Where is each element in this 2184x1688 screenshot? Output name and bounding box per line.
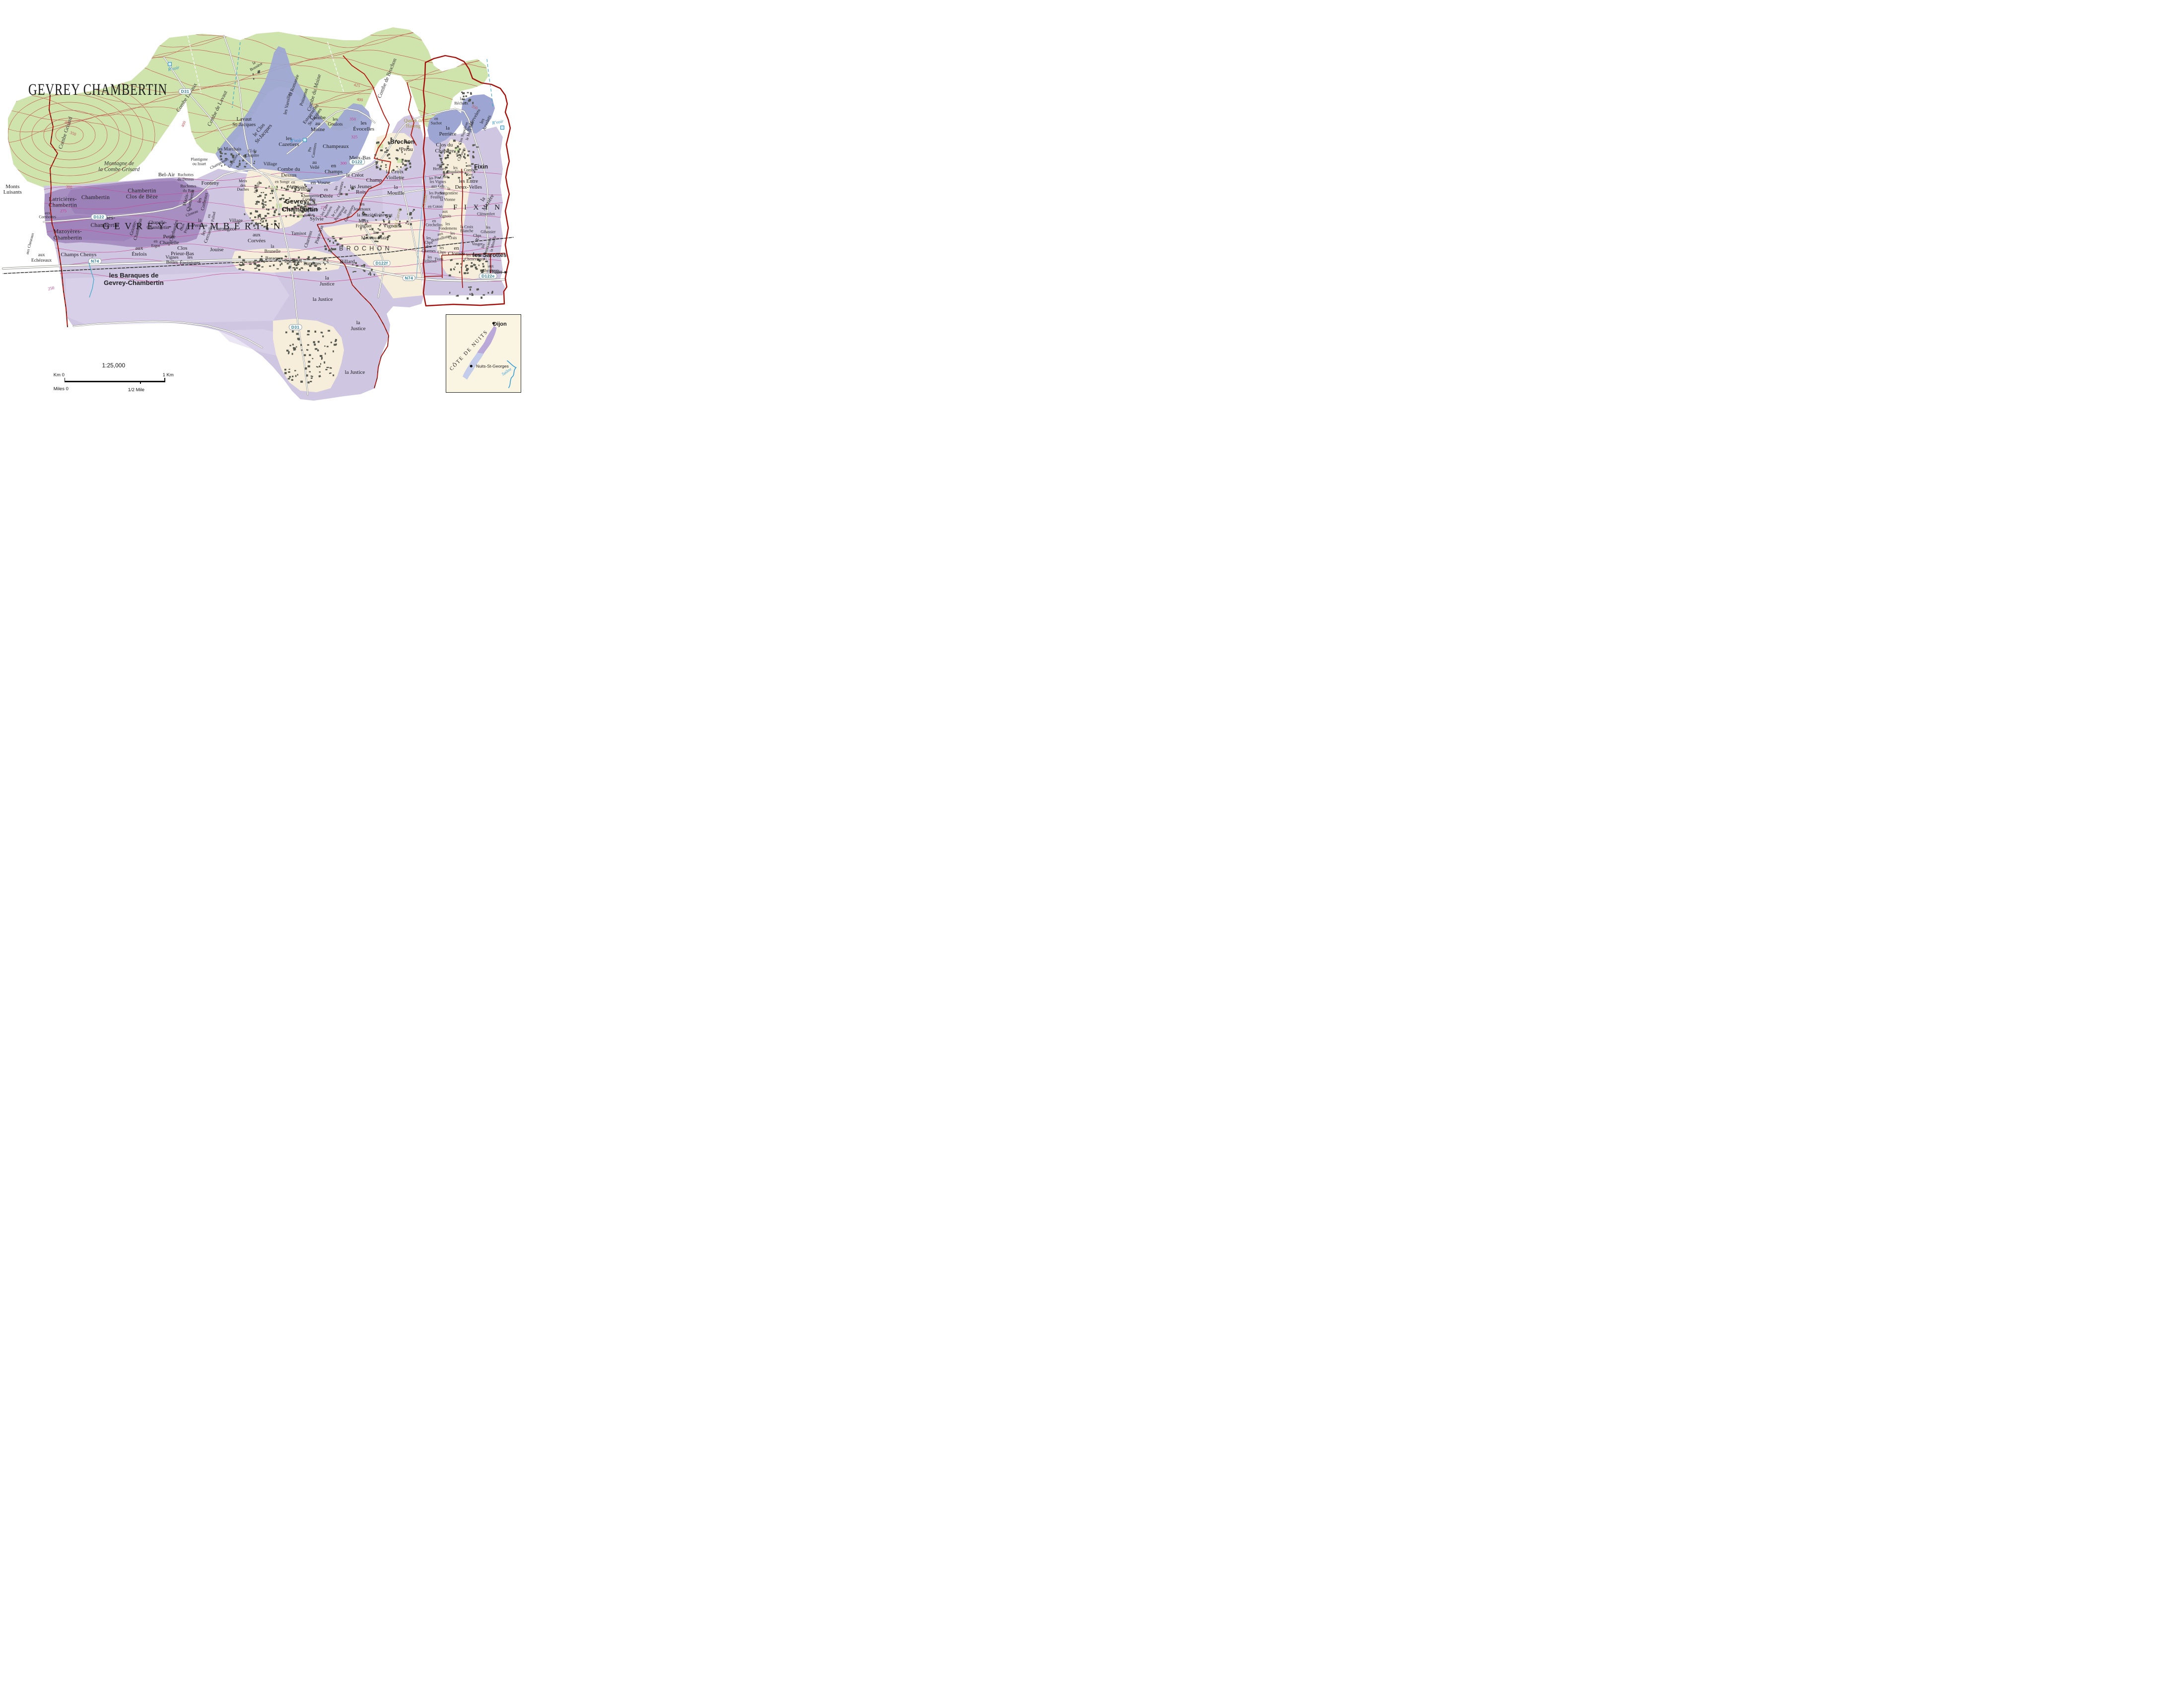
map-label: Fonteny — [201, 181, 219, 187]
map-label: 250 — [48, 285, 55, 291]
map-label: les Hervelets — [465, 108, 482, 132]
map-label: au Closeau — [184, 205, 199, 218]
map-label: aux Boutoillottes — [430, 230, 452, 243]
map-label: la Mouille — [387, 185, 405, 197]
map-label: Champonnet — [209, 157, 229, 170]
map-label: les Carrés — [393, 207, 403, 228]
map-label: 350 — [349, 117, 356, 121]
map-label: la Justice — [351, 320, 366, 332]
inset-canvas — [446, 315, 521, 392]
map-label: les Gibassier — [480, 226, 495, 234]
map-label: aux Cheseaux — [25, 233, 35, 255]
map-label: Village — [298, 187, 311, 192]
map-label: la Croix Blanche — [460, 225, 473, 233]
map-label: aux Echézeaux — [31, 253, 52, 263]
map-label: en — [324, 188, 328, 193]
map-label: Baraques — [266, 256, 283, 261]
map-label: la Bossière — [247, 58, 263, 72]
church-icon: ✝ — [446, 154, 450, 159]
map-label: les Entre Deux-Velles — [455, 179, 482, 191]
map-label: les Portes Feuilles — [429, 191, 445, 200]
map-label: Clos du Chapître — [435, 142, 454, 154]
map-label: Mazis- Chambertin — [181, 188, 196, 212]
map-label: les Croisettes — [333, 180, 345, 197]
map-label: Combe du Moine — [306, 73, 323, 112]
map-label: la Vionne — [440, 198, 456, 203]
map-label: la Mouille — [489, 235, 497, 252]
map-label: les Baraques de — [109, 272, 159, 279]
map-label: Clémenfert — [477, 212, 495, 216]
scale-bar: 1:25,000 Km 0 1 Km Miles 0 1/2 Mile — [54, 362, 174, 396]
map-label: Champerrier du Dessus — [301, 194, 321, 207]
map-label: les Marchais — [217, 147, 241, 152]
map-label: Ruchottes du Bas — [181, 184, 197, 193]
dijon-dot — [492, 322, 494, 325]
map-label: le Créot — [346, 173, 363, 179]
map-label: 425 — [353, 82, 360, 88]
saone-river-line — [507, 361, 516, 388]
map-label: les Pts Crais — [429, 174, 449, 181]
map-label: GEVREY-CHAMBERTIN — [103, 222, 285, 232]
map-label: Mazoyères- Chambertin — [54, 229, 82, 241]
map-label: la Mazière — [357, 212, 377, 217]
scale-ratio: 1:25,000 — [102, 362, 125, 369]
map-label: 400 — [356, 97, 363, 102]
map-label: le Meix au Maire — [361, 230, 389, 241]
map-label: FIXIN — [453, 204, 507, 211]
map-label: Cherbaudes — [169, 219, 180, 242]
map-label: Bel-Air — [158, 172, 175, 178]
map-label: aux Combottes — [39, 211, 56, 219]
map-label: BROCHON — [339, 245, 393, 252]
map-label: aux Cheminots — [482, 265, 500, 273]
map-label: Combe au Moine — [310, 115, 326, 133]
map-label: Village — [264, 162, 277, 167]
map-label: Tamisot — [291, 231, 306, 236]
map-label: Clos Prieur-Bas — [171, 246, 194, 258]
map-label: les Corbeaux — [196, 191, 209, 211]
route-badge: N74 — [88, 258, 102, 264]
map-label: Estournelles St-Jacques — [302, 103, 324, 128]
map-label: les Cercueils — [199, 224, 214, 244]
map-label: Vignes Belles — [165, 255, 178, 265]
map-label: les Journaux — [353, 202, 371, 212]
reservoir-icon — [168, 62, 172, 66]
map-label: Meix Fringuet — [355, 218, 371, 229]
map-label: en Coton — [428, 205, 442, 209]
map-label: Chazière — [292, 186, 306, 190]
map-label: les Chps des Charmes — [421, 236, 435, 254]
map-label: en Combe Roy — [464, 164, 475, 177]
map-label: Dérée — [320, 194, 333, 200]
map-label: les Varoilles — [283, 91, 293, 115]
nuits-st-georges-dot — [470, 365, 472, 367]
cote-de-nuits-south-shape — [463, 353, 483, 380]
map-label: Clos Napoléon — [458, 122, 469, 145]
map-label: en Ergot — [151, 240, 160, 248]
map-label: les Cazetiers — [278, 137, 299, 148]
map-label: Combe Lavaux — [176, 82, 199, 114]
route-badge: D31 — [289, 324, 302, 330]
map-label: Combe Grisard — [58, 116, 74, 150]
map-label: Craipillot — [227, 153, 239, 169]
map-label: les Sarottes — [473, 252, 507, 259]
map-label: Chps de Vosger — [472, 234, 482, 247]
map-label: Montagne de la Combe Grisard — [98, 160, 139, 173]
map-label: Village — [229, 218, 242, 223]
map-label: Crètevent — [374, 212, 393, 217]
route-badge: D122 — [349, 159, 365, 165]
map-label: Chambertin — [81, 195, 110, 201]
map-label: aux Herbues — [433, 163, 446, 171]
map-label: Combe du Dessus — [277, 167, 300, 179]
reservoir-icon — [500, 126, 504, 130]
map-label: Queue de Hareng — [404, 119, 423, 130]
map-label: R'voir — [167, 65, 180, 72]
map-label: les Goulots — [328, 117, 342, 127]
map-label: la Justice — [320, 276, 335, 287]
map-label: Latricières- Chambertin — [49, 197, 77, 209]
map-label: les Fondemens — [439, 222, 457, 231]
map-label: 350 — [471, 104, 478, 111]
map-label: Jouise — [210, 247, 224, 253]
map-label: Poissenot — [299, 88, 309, 107]
map-label: au Vellé — [310, 160, 320, 171]
map-label: aux Vignois — [439, 210, 451, 218]
reservoir-icon — [303, 138, 307, 142]
map-label: les Jeunes Rois — [350, 184, 372, 196]
map-label: Petite Chapelle — [159, 234, 179, 246]
route-badge: D122 — [91, 214, 107, 220]
map-page: GEVREY CHAMBERTIN Combe GrisardMontagne … — [0, 0, 546, 422]
map-label: Combe de Lavaut — [206, 90, 229, 128]
map-label: la Réchaux — [455, 97, 469, 105]
map-label: les Évocelles — [353, 121, 374, 133]
map-label: les Chenevières — [478, 236, 493, 258]
map-label: la Romanée — [288, 74, 300, 97]
map-label: en Crechelins — [425, 219, 442, 227]
map-label: Clos Prieur — [179, 222, 190, 234]
map-label: Chapelle- Chambertin — [146, 220, 169, 231]
map-label: Lavaut St-Jacques — [232, 117, 256, 129]
route-badge: D122f — [373, 260, 391, 266]
scale-tick-end — [164, 378, 165, 382]
map-label: Gevrey- — [285, 198, 309, 205]
scale-km-one: 1 Km — [163, 372, 174, 378]
map-label: la Mazière — [476, 191, 495, 212]
map-label: Chambertin — [91, 222, 119, 228]
scale-tick-half-mile — [140, 381, 141, 384]
map-label: le Carré Rougeaud — [330, 204, 346, 221]
map-label: Carougeot — [213, 226, 236, 232]
map-label: 275 — [321, 206, 327, 210]
map-label: la Croix Viollette — [385, 169, 404, 181]
map-label: la Brunelle — [265, 244, 281, 254]
map-label: Champs Chenys — [61, 252, 96, 258]
map-label: aux Cheusots — [453, 145, 467, 162]
scale-tick-start — [65, 378, 66, 382]
map-label: la Perrière — [193, 218, 207, 228]
map-label: les Guelepines — [340, 203, 355, 222]
map-label: en Songe — [275, 180, 290, 185]
map-label: les Arvelets — [477, 113, 492, 132]
map-label: Pts Cazetiers — [307, 142, 318, 158]
map-label: la Sorgentière — [440, 187, 458, 195]
scale-half-mile: 1/2 Mile — [128, 387, 144, 393]
scale-bar-line — [65, 381, 165, 382]
map-label: 300 — [66, 185, 72, 190]
map-label: Tions — [434, 257, 443, 262]
map-label: Champ — [366, 178, 382, 184]
map-label: 400 — [180, 120, 187, 128]
map-label: Baraques — [284, 259, 302, 264]
map-label: Champeaux — [323, 144, 349, 150]
map-label: en Clomée — [448, 246, 465, 258]
map-label: R'voir — [290, 139, 302, 143]
map-label: 325 — [351, 135, 358, 140]
map-label: Baraques — [304, 262, 321, 267]
map-label: Brochon — [390, 139, 414, 145]
map-label: Champerrier du Bas — [298, 208, 319, 218]
map-label: 400 — [64, 120, 71, 127]
map-label: Préau — [401, 147, 413, 153]
map-label: Meix des Duches — [237, 179, 249, 192]
map-label: aux Ételois — [132, 246, 147, 258]
map-label: les Basses Chenevières — [465, 253, 484, 262]
map-label: Monts Luisants — [3, 184, 22, 196]
map-label: les Boudières — [447, 166, 463, 174]
scale-km-zero: Km 0 — [54, 372, 65, 378]
map-label: Gevrey-Chambertin — [104, 280, 164, 286]
map-label: Charreux — [303, 230, 314, 249]
map-label: les Crais — [448, 232, 457, 240]
map-label: en Motrot — [288, 181, 299, 189]
map-label: Plantigone ou Issart — [191, 158, 207, 166]
map-label: Vignois — [383, 224, 400, 230]
map-label: 350 — [69, 130, 77, 137]
map-label: les Clos Perriers — [320, 204, 333, 219]
map-label: aux Corvées — [248, 232, 266, 244]
map-label: le Meix Bas — [465, 122, 475, 141]
map-label: Billard — [340, 259, 355, 265]
map-label: les Épointures — [180, 255, 200, 266]
map-label: Cl du Chapître — [245, 149, 259, 158]
map-label: R'voir — [492, 119, 504, 126]
map-label: le Clos St-Jacques — [250, 119, 273, 144]
map-label: en Champs — [325, 163, 342, 175]
map-label: les Vignes aux Gds — [430, 180, 446, 189]
map-label: 275 — [60, 209, 67, 213]
map-label: les Chps — [438, 246, 446, 254]
map-label: Chambertin Clos de Bèze — [126, 188, 158, 201]
map-label: Mévelle — [254, 181, 262, 195]
map-label: Combes du Bas — [302, 198, 315, 211]
church-icon: ✝ — [359, 227, 363, 232]
map-label: en Suchot — [431, 117, 442, 125]
map-label: la Justice — [345, 370, 365, 376]
map-label: Combe de Brochon — [377, 58, 398, 99]
route-badge: N74 — [403, 275, 416, 281]
scale-miles-zero: Miles 0 — [54, 386, 68, 392]
map-label: la Justice — [313, 297, 333, 303]
route-badge: D31 — [179, 88, 192, 94]
map-label: Pince-Vin — [314, 225, 325, 245]
inset-map: Dijon CÔTE DE NUITS Nuits-St-Georges Saô… — [446, 314, 522, 393]
map-label: Griotte- Chambertin — [128, 216, 143, 241]
map-label: Sylvie — [310, 216, 324, 222]
map-label: Ruchottes du Dessus — [178, 173, 194, 181]
map-label: en Pallud — [206, 211, 216, 222]
map-label: Chambertin — [282, 206, 318, 213]
map-label: la Perrière — [439, 126, 457, 138]
route-badge: D122e — [479, 273, 497, 279]
map-label: Fixin — [474, 163, 488, 170]
map-label: 300 — [341, 161, 347, 165]
map-label: en Vosne — [311, 180, 331, 186]
map-label: les Tellières — [423, 255, 436, 264]
map-label: Créole — [421, 194, 429, 208]
